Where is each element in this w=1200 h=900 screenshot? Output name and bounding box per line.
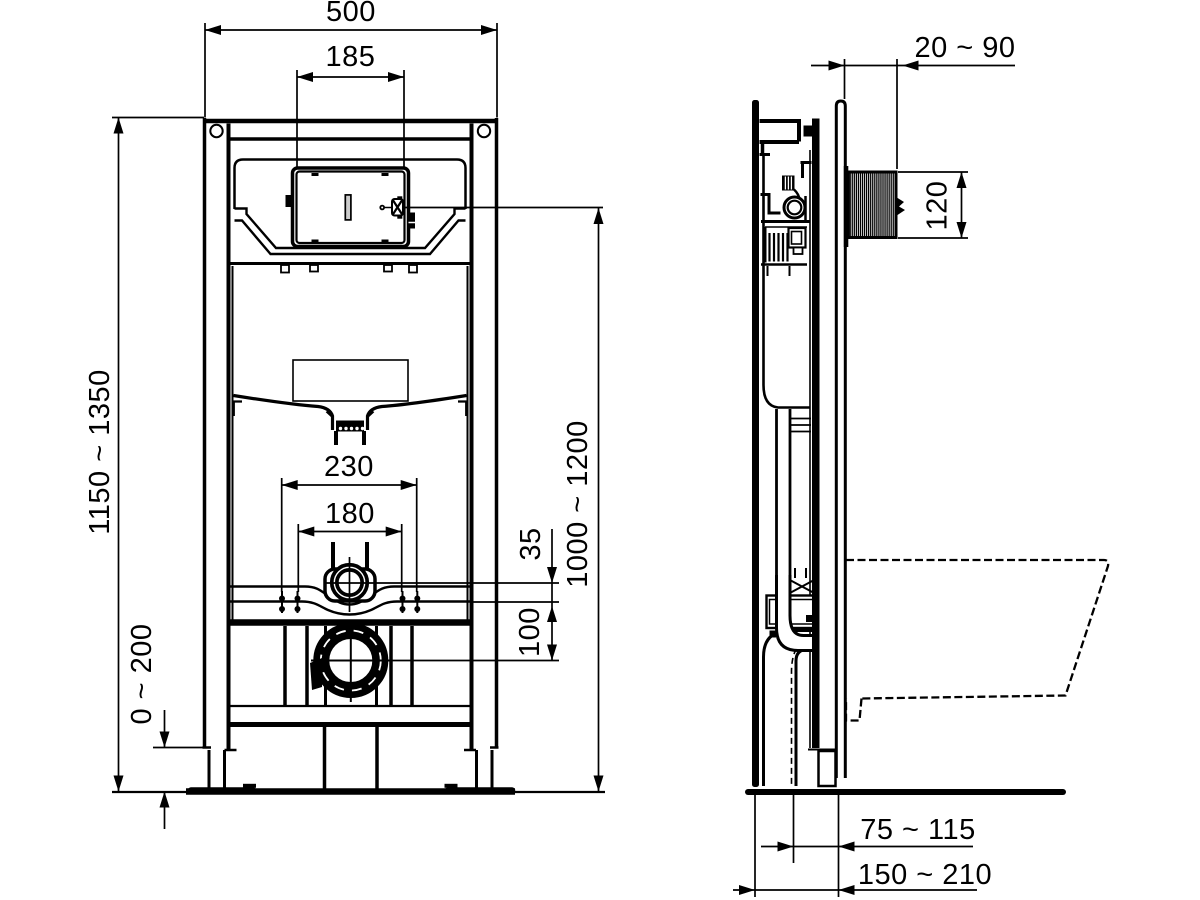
svg-text:1000 ~ 1200: 1000 ~ 1200 (562, 420, 594, 588)
svg-text:35: 35 (515, 527, 547, 560)
svg-text:180: 180 (325, 498, 375, 530)
svg-text:150 ~ 210: 150 ~ 210 (858, 859, 992, 891)
svg-text:100: 100 (514, 607, 546, 657)
svg-text:500: 500 (326, 0, 376, 28)
svg-text:75 ~ 115: 75 ~ 115 (860, 814, 976, 846)
svg-text:120: 120 (922, 181, 954, 231)
svg-text:0 ~ 200: 0 ~ 200 (126, 623, 158, 724)
svg-text:230: 230 (324, 451, 374, 483)
svg-text:185: 185 (326, 41, 376, 73)
svg-text:1150 ~ 1350: 1150 ~ 1350 (84, 369, 116, 534)
svg-text:20 ~ 90: 20 ~ 90 (914, 32, 1015, 64)
